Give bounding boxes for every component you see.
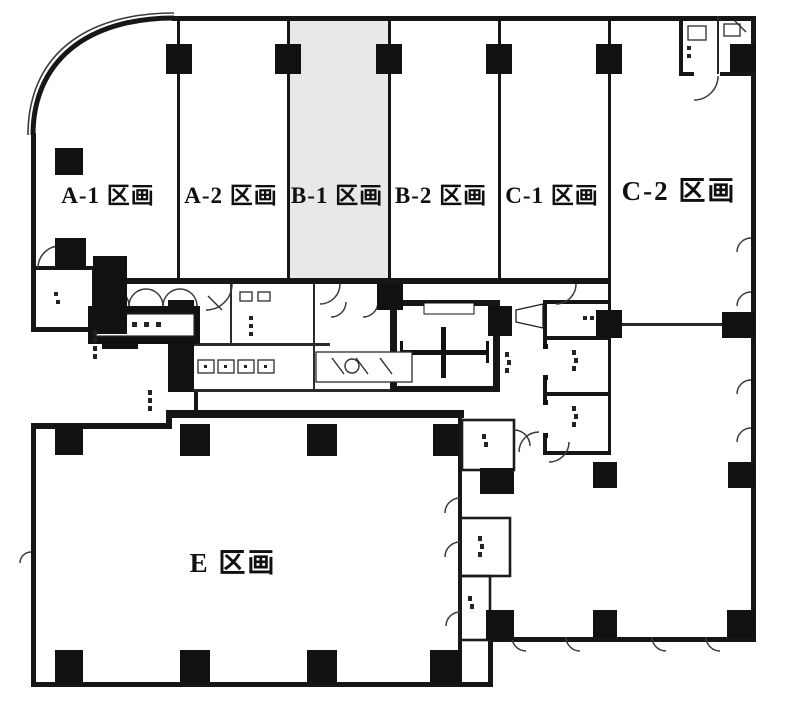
toilet-stall-marks bbox=[249, 316, 253, 336]
section-a2-area bbox=[180, 21, 287, 278]
section-b2-area bbox=[391, 21, 498, 278]
service-room-marks bbox=[583, 316, 594, 320]
door-arc bbox=[445, 542, 460, 557]
rounded-corner-wall bbox=[33, 18, 174, 135]
stair-landing bbox=[424, 303, 474, 314]
ps-room-marks bbox=[54, 292, 60, 304]
eps-room-marks bbox=[478, 536, 484, 557]
section-label-a2: A-2 区画 bbox=[184, 183, 278, 208]
core-top-wall bbox=[95, 278, 611, 284]
elevator-shaft-2-marks bbox=[572, 406, 578, 427]
door-arc bbox=[514, 430, 530, 446]
section-label-e: E 区画 bbox=[190, 548, 277, 578]
stairs-icon bbox=[400, 327, 489, 378]
shaft-room-marks bbox=[482, 434, 488, 447]
section-label-b2: B-2 区画 bbox=[395, 183, 487, 208]
door-arc bbox=[445, 498, 460, 513]
floorplan-svg: A-1 区画 A-2 区画 B-1 区画 B-2 区画 C-1 区画 C-2 区… bbox=[0, 0, 787, 713]
section-c1-area bbox=[501, 21, 608, 278]
section-label-c2: C-2 区画 bbox=[622, 176, 737, 206]
door-arc bbox=[694, 76, 718, 100]
door-arc bbox=[331, 302, 346, 317]
open-door-leaf bbox=[516, 304, 543, 328]
door-arc bbox=[446, 612, 460, 626]
urinal-counter bbox=[316, 352, 412, 382]
entrance-door-arc bbox=[129, 289, 163, 306]
floorplan-image: A-1 区画 A-2 区画 B-1 区画 B-2 区画 C-1 区画 C-2 区… bbox=[0, 0, 787, 713]
restroom-block bbox=[168, 284, 412, 392]
section-label-a1: A-1 区画 bbox=[61, 183, 155, 208]
door-arc bbox=[363, 302, 378, 317]
corridor-bottom-wall bbox=[166, 410, 464, 418]
section-b1-area-highlight bbox=[290, 19, 388, 279]
section-label-b1: B-1 区画 bbox=[291, 183, 383, 208]
elevator-shaft-1-marks bbox=[572, 350, 578, 371]
section-label-c1: C-1 区画 bbox=[505, 183, 599, 208]
sink-row bbox=[198, 360, 274, 373]
door-arc bbox=[320, 284, 340, 304]
ps-room-marks-2 bbox=[468, 596, 474, 609]
